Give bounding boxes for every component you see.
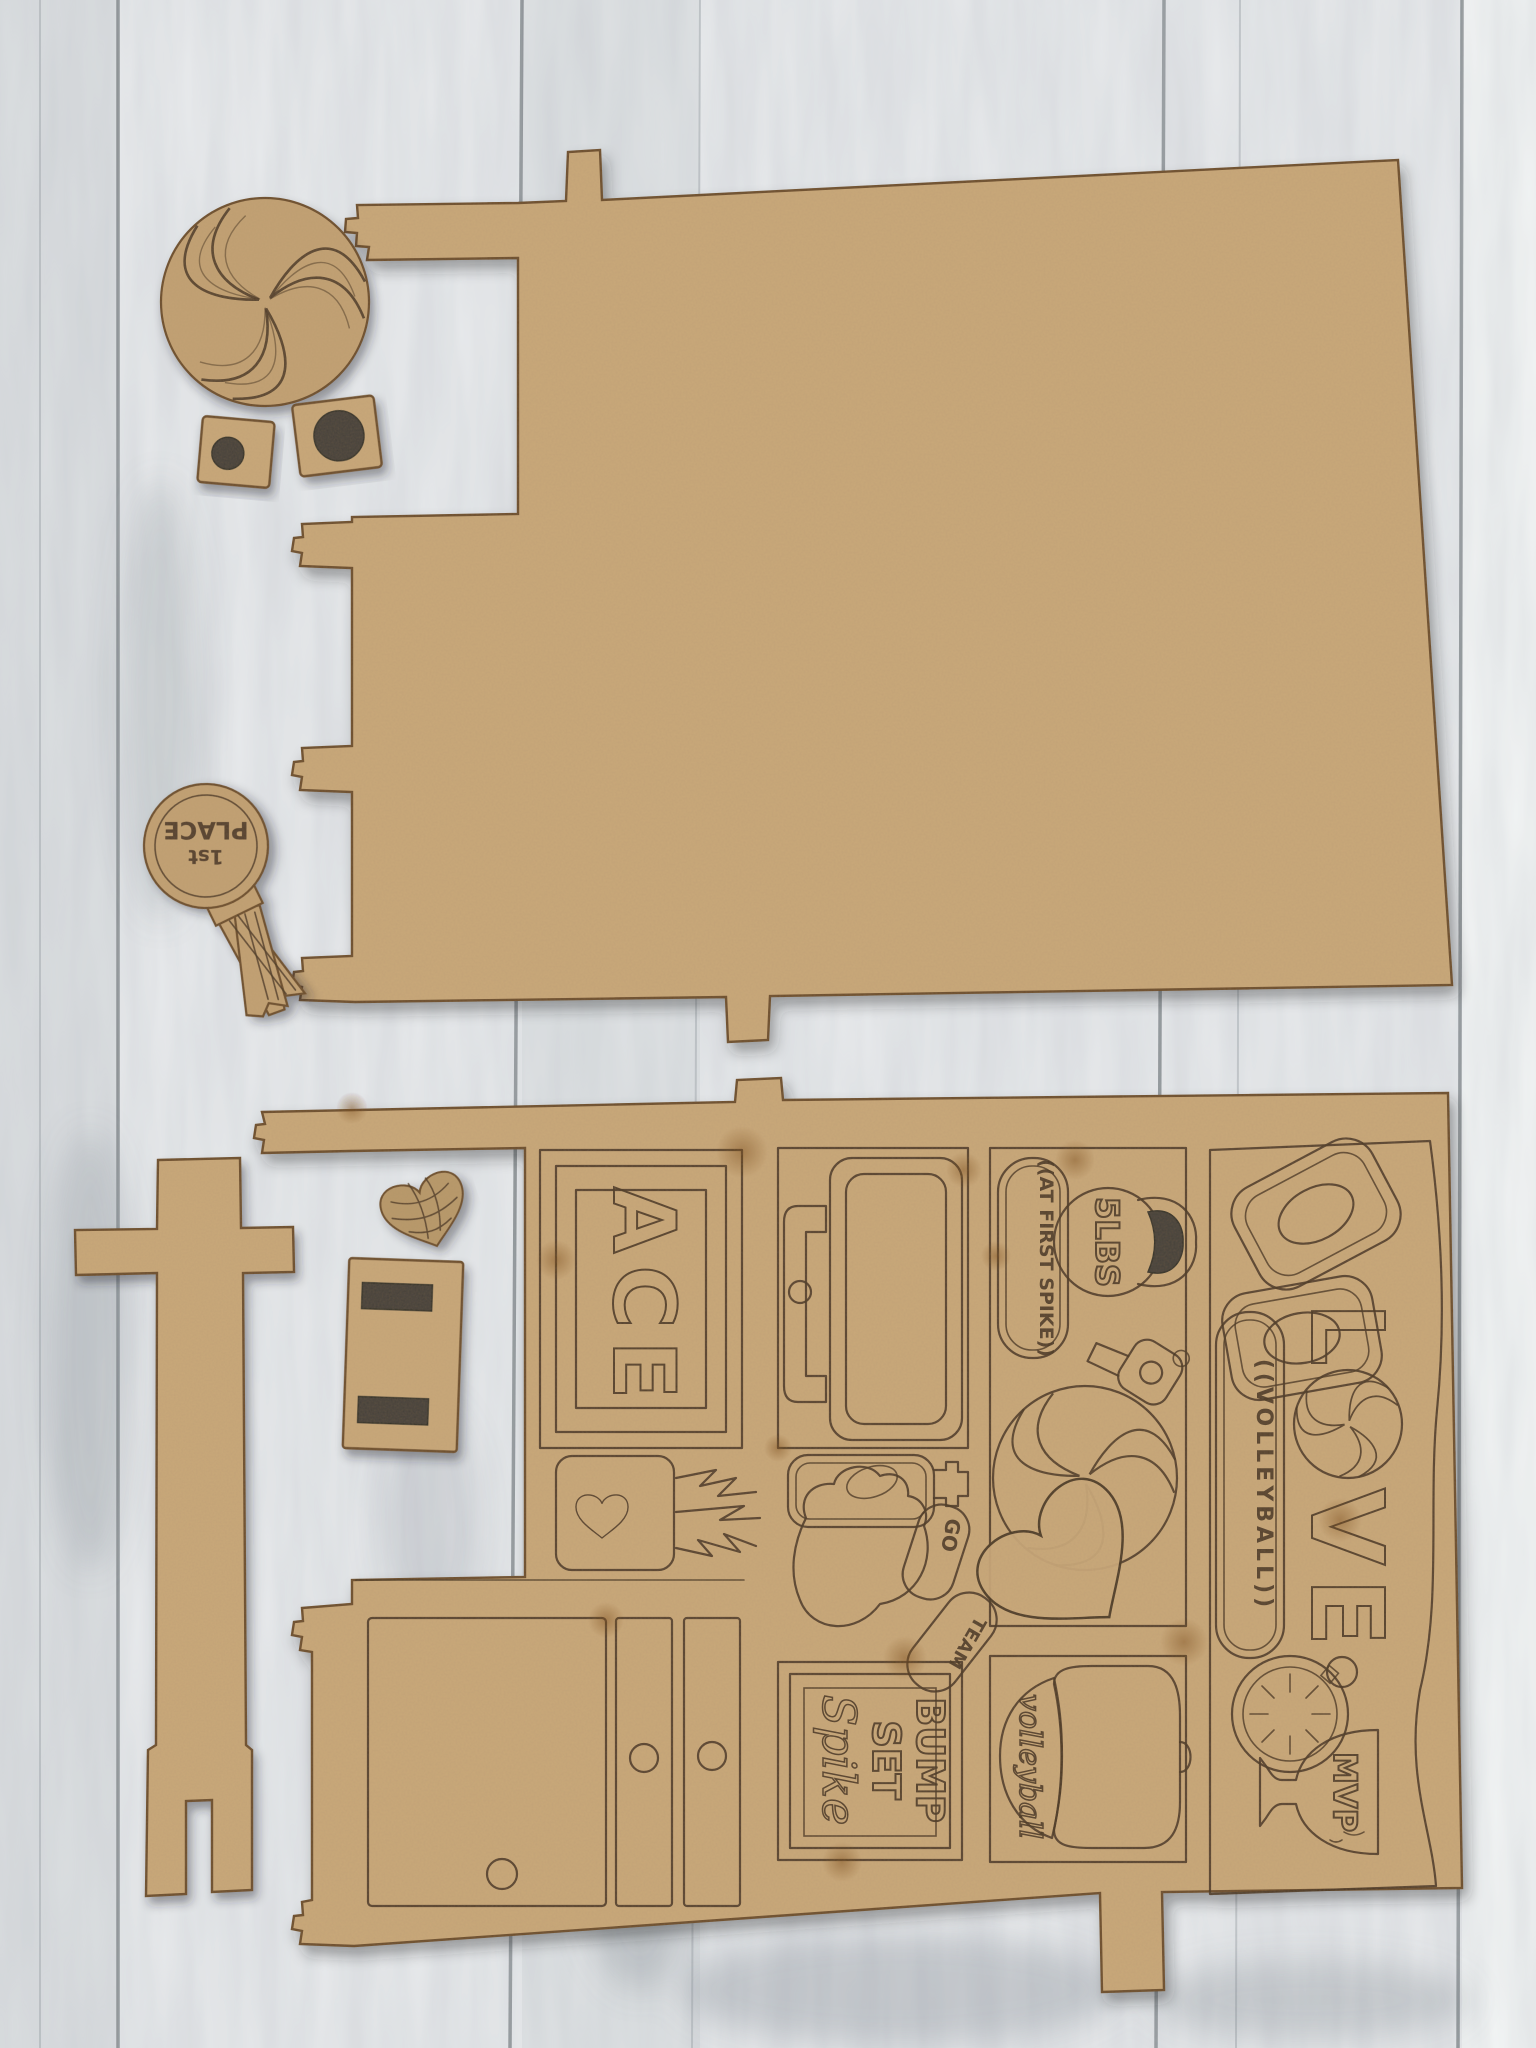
spacer-square-1 bbox=[197, 416, 274, 488]
ribbon-1st-text: 1st bbox=[188, 845, 224, 869]
spike-text: Spike bbox=[812, 1695, 866, 1826]
ribbon-place-text: PLACE bbox=[163, 816, 248, 844]
mvp-text: MVP bbox=[1326, 1752, 1364, 1832]
set-text: SET bbox=[864, 1720, 908, 1799]
plank-left bbox=[0, 0, 118, 2048]
slotted-bracket-piece bbox=[343, 1258, 464, 1452]
bracket-slot-1 bbox=[362, 1283, 433, 1311]
ace-text: ACE bbox=[593, 1187, 693, 1411]
spacer-square-2 bbox=[292, 395, 382, 476]
spike-banner-text: ((AT FIRST SPIKE)) bbox=[1035, 1159, 1057, 1357]
love-letter-l: L bbox=[1288, 1302, 1405, 1366]
plank-right-highlight bbox=[1462, 0, 1536, 2048]
kettlebell-text: 5LBS bbox=[1088, 1197, 1126, 1287]
volleyball-pill-text: ((VOLLEYBALL)) bbox=[1251, 1359, 1276, 1611]
bump-text: BUMP bbox=[908, 1697, 952, 1823]
love-letter-e: E bbox=[1288, 1578, 1405, 1646]
photo-canvas: ACE bbox=[0, 0, 1536, 2048]
craft-kit-photo: ACE bbox=[0, 0, 1536, 2048]
cap-text: volleyball bbox=[1012, 1694, 1047, 1839]
bracket-slot-2 bbox=[358, 1396, 429, 1424]
